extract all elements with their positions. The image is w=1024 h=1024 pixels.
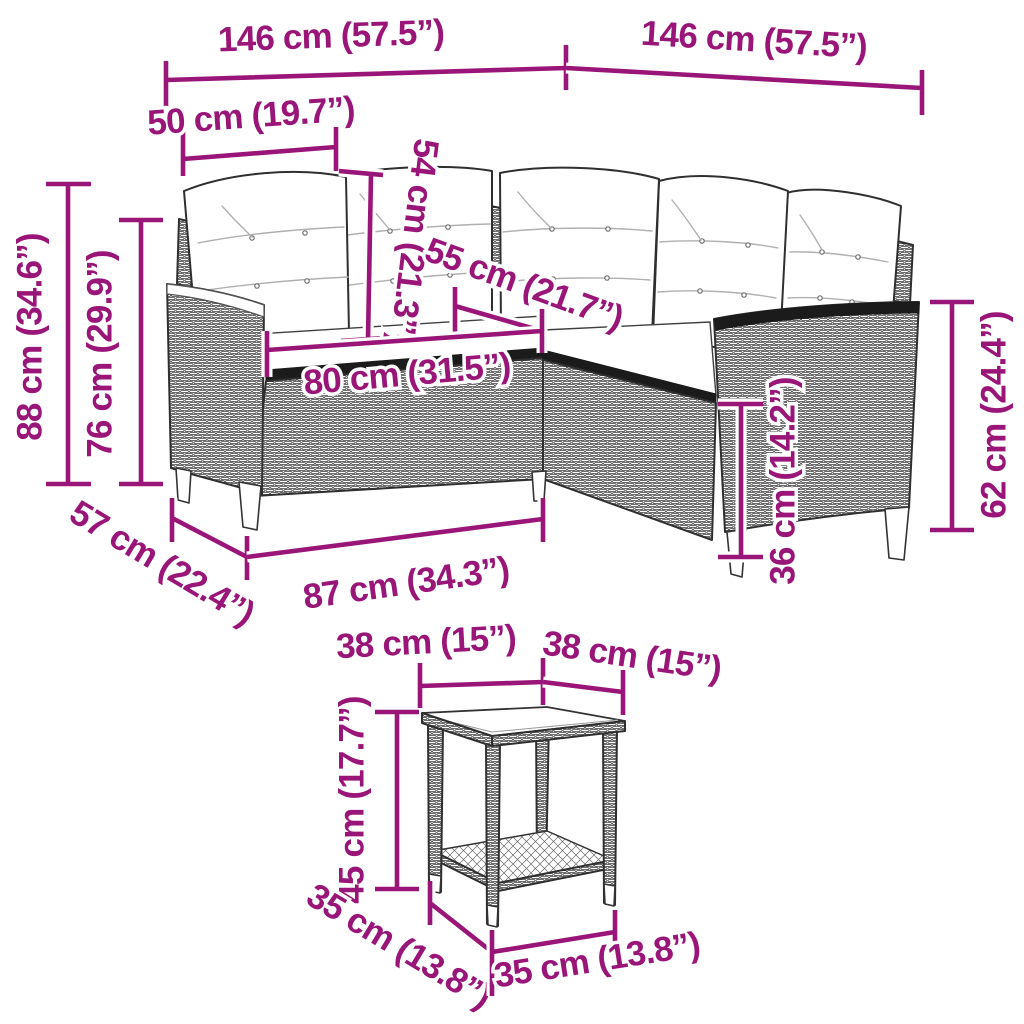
dim-sofa-front-width: 87 cm (34.3”) — [247, 498, 543, 617]
dim-sofa-overall-height: 88 cm (34.6”) — [11, 184, 92, 484]
dim-label-seat-height: 36 cm (14.2”) — [764, 377, 803, 585]
dim-label-table-base-depth: 35 cm (13.8”) — [300, 876, 498, 1016]
dim-line — [930, 302, 974, 530]
dim-label-front-width: 87 cm (34.3”) — [301, 549, 512, 616]
dim-sofa-backrest-height: 76 cm (29.9”) — [81, 220, 164, 484]
sofa-leg — [885, 507, 909, 560]
dim-line — [119, 220, 163, 484]
sofa-leg — [176, 468, 191, 503]
dim-table-top-width-left: 38 cm (15”) — [335, 618, 543, 708]
diagram-svg: 146 cm (57.5”) 146 cm (57.5”) 50 cm (19.… — [0, 0, 1024, 1024]
dim-table-base-width: 35 cm (13.8”) — [491, 910, 702, 996]
left-armrest — [167, 284, 264, 494]
dim-label-table-top-right: 38 cm (15”) — [540, 623, 724, 688]
dim-label-depth: 57 cm (22.4”) — [63, 493, 261, 633]
dim-table-height: 45 cm (17.7”) — [333, 696, 420, 904]
dim-table-top-width-right: 38 cm (15”) — [540, 623, 724, 715]
table-leg-front — [486, 738, 500, 926]
dim-line — [375, 712, 419, 889]
dim-sofa-arm-depth: 50 cm (19.7”) — [146, 89, 356, 176]
dim-label-back-width-right: 146 cm (57.5”) — [640, 14, 868, 67]
table-foot-front — [487, 905, 498, 927]
dim-label-table-height: 45 cm (17.7”) — [333, 696, 372, 904]
table-shelf — [433, 831, 613, 883]
table-leg-right — [603, 726, 617, 905]
dim-sofa-back-width-right: 146 cm (57.5”) — [566, 14, 922, 115]
dim-label-backrest-height: 76 cm (29.9”) — [81, 250, 120, 458]
dim-sofa-arm-height: 62 cm (24.4”) — [930, 302, 1014, 530]
dim-label-arm-height: 62 cm (24.4”) — [975, 311, 1014, 519]
dimension-diagram-canvas: 146 cm (57.5”) 146 cm (57.5”) 50 cm (19.… — [0, 0, 1024, 1024]
dim-label-arm-depth: 50 cm (19.7”) — [146, 89, 356, 142]
table-leg-left — [428, 721, 443, 892]
sofa-leg — [239, 482, 261, 530]
dim-sofa-back-width-left: 146 cm (57.5”) — [166, 13, 566, 106]
sofa-leg — [532, 471, 546, 501]
side-table-illustration — [422, 707, 625, 927]
dim-label-back-width-left: 146 cm (57.5”) — [217, 13, 444, 60]
dim-label-table-top-left: 38 cm (15”) — [335, 618, 517, 666]
dim-sofa-depth: 57 cm (22.4”) — [63, 493, 261, 633]
table-foot-right — [604, 884, 615, 906]
dim-label-overall-height: 88 cm (34.6”) — [11, 233, 50, 441]
dim-table-base-depth: 35 cm (13.8”) — [300, 876, 498, 1016]
